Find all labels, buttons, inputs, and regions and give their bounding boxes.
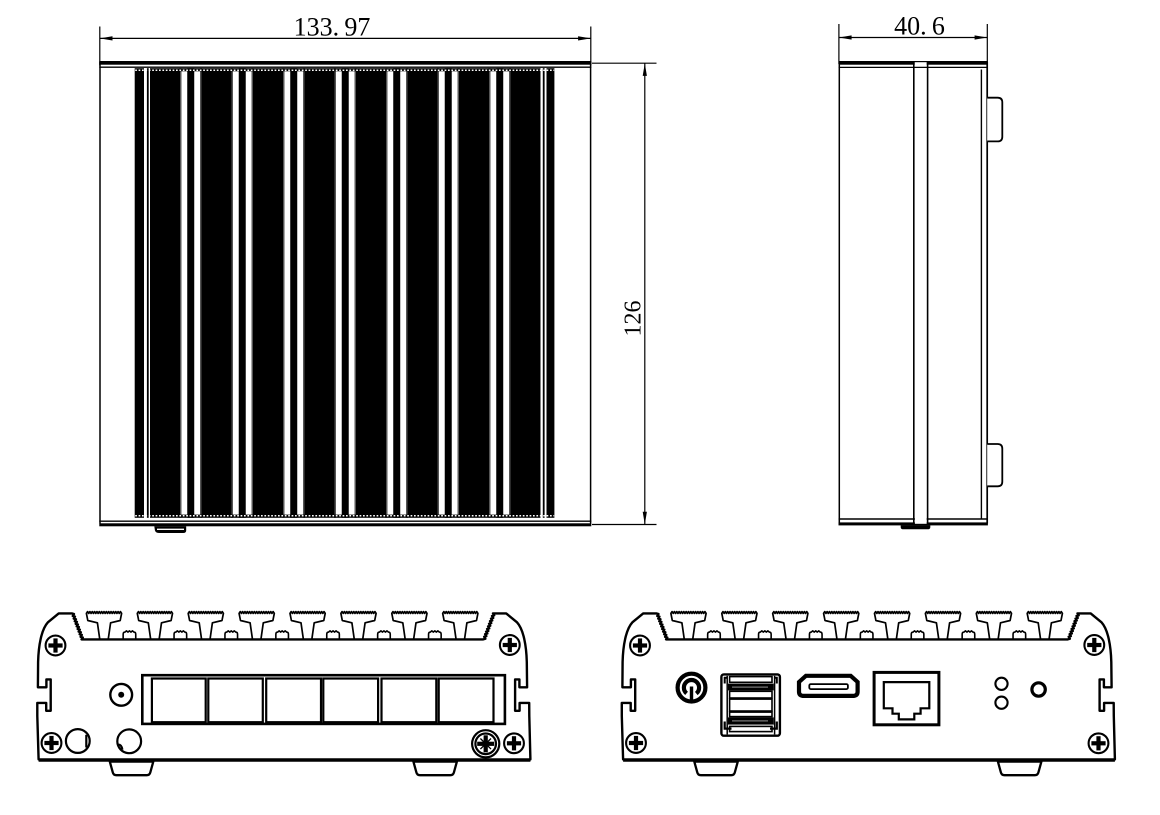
svg-text:40. 6: 40. 6 [894,12,945,41]
svg-text:126: 126 [621,301,647,337]
svg-text:133. 97: 133. 97 [294,13,371,42]
